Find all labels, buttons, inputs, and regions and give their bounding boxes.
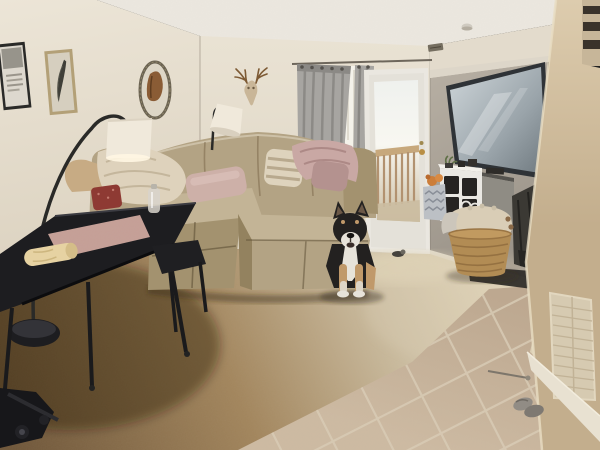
mauve-pillow xyxy=(310,160,350,193)
shelf-mug xyxy=(458,161,465,167)
living-room-photo xyxy=(0,0,600,450)
red-pouch xyxy=(91,184,123,211)
doorknob xyxy=(419,149,425,155)
smoke-detector xyxy=(462,24,473,31)
lamp-shade xyxy=(106,119,152,158)
deadbolt xyxy=(420,141,424,145)
balcony-balusters xyxy=(378,152,414,208)
dog-shadow xyxy=(320,290,384,304)
photo-canvas xyxy=(0,0,600,450)
framed-fern-art xyxy=(44,49,77,115)
oval-horse-frame xyxy=(140,62,170,118)
shelf-item xyxy=(468,159,477,166)
